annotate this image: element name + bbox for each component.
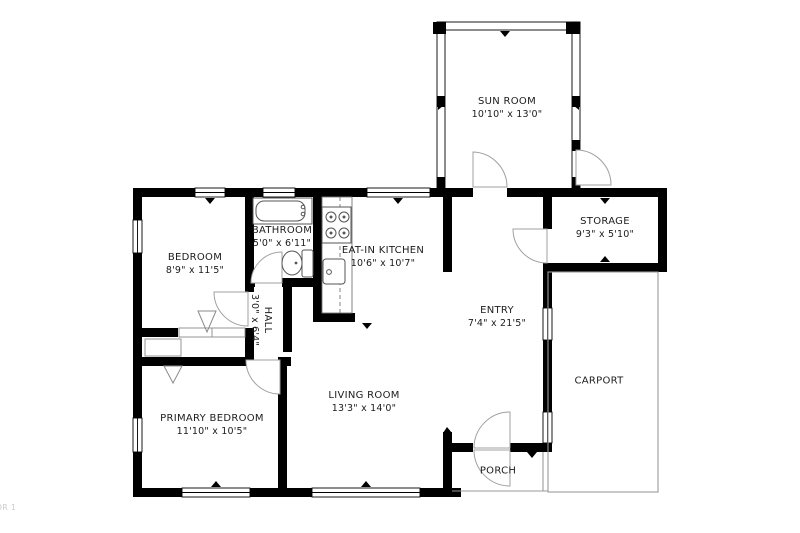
room-label-bathroom: BATHROOM 5'0" x 6'11"	[252, 224, 312, 250]
primary-bedroom-door	[246, 360, 280, 394]
room-dims: 8'9" x 11'5"	[166, 264, 224, 277]
room-label-living-room: LIVING ROOM 13'3" x 14'0"	[328, 389, 399, 415]
floor-plan: SUN ROOM 10'10" x 13'0" STORAGE 9'3" x 5…	[0, 0, 800, 533]
porch-door-upper	[474, 412, 510, 448]
room-dims: 3'0" x 6'4"	[248, 294, 261, 346]
closets	[145, 311, 245, 383]
room-label-entry: ENTRY 7'4" x 21'5"	[468, 304, 526, 330]
room-label-sun-room: SUN ROOM 10'10" x 13'0"	[472, 95, 543, 121]
room-dims: 10'6" x 10'7"	[342, 257, 424, 270]
room-label-carport: CARPORT	[574, 375, 623, 388]
room-label-hall: HALL 3'0" x 6'4"	[248, 294, 274, 346]
room-label-primary-bedroom: PRIMARY BEDROOM 11'10" x 10'5"	[160, 412, 264, 438]
room-name: PRIMARY BEDROOM	[160, 413, 264, 424]
room-label-porch: PORCH	[480, 465, 516, 478]
sun-room-interior-door	[473, 152, 507, 187]
room-dims: 13'3" x 14'0"	[328, 402, 399, 415]
room-dims: 11'10" x 10'5"	[160, 425, 264, 438]
room-name: BEDROOM	[168, 252, 222, 263]
room-name: STORAGE	[580, 216, 630, 227]
room-name: HALL	[262, 307, 273, 334]
bathtub	[253, 198, 312, 224]
entry-storage-door	[513, 229, 547, 263]
room-label-storage: STORAGE 9'3" x 5'10"	[576, 215, 634, 241]
room-name: ENTRY	[480, 305, 514, 316]
room-name: LIVING ROOM	[328, 390, 399, 401]
room-name: EAT-IN KITCHEN	[342, 245, 424, 256]
bathroom-door	[251, 252, 282, 283]
room-name: SUN ROOM	[478, 96, 536, 107]
stove	[322, 207, 351, 243]
bedroom-door	[214, 292, 248, 326]
room-name: CARPORT	[574, 376, 623, 387]
room-dims: 7'4" x 21'5"	[468, 317, 526, 330]
room-name: BATHROOM	[252, 225, 312, 236]
room-dims: 5'0" x 6'11"	[252, 237, 312, 250]
sun-room-exterior-door	[576, 150, 611, 185]
room-label-eat-in-kitchen: EAT-IN KITCHEN 10'6" x 10'7"	[342, 244, 424, 270]
room-label-bedroom: BEDROOM 8'9" x 11'5"	[166, 251, 224, 277]
watermark-text: OR 1	[0, 503, 16, 512]
toilet	[282, 250, 313, 277]
room-dims: 10'10" x 13'0"	[472, 108, 543, 121]
room-dims: 9'3" x 5'10"	[576, 228, 634, 241]
room-name: PORCH	[480, 466, 516, 477]
closet-rod-marker-primary	[164, 366, 182, 383]
